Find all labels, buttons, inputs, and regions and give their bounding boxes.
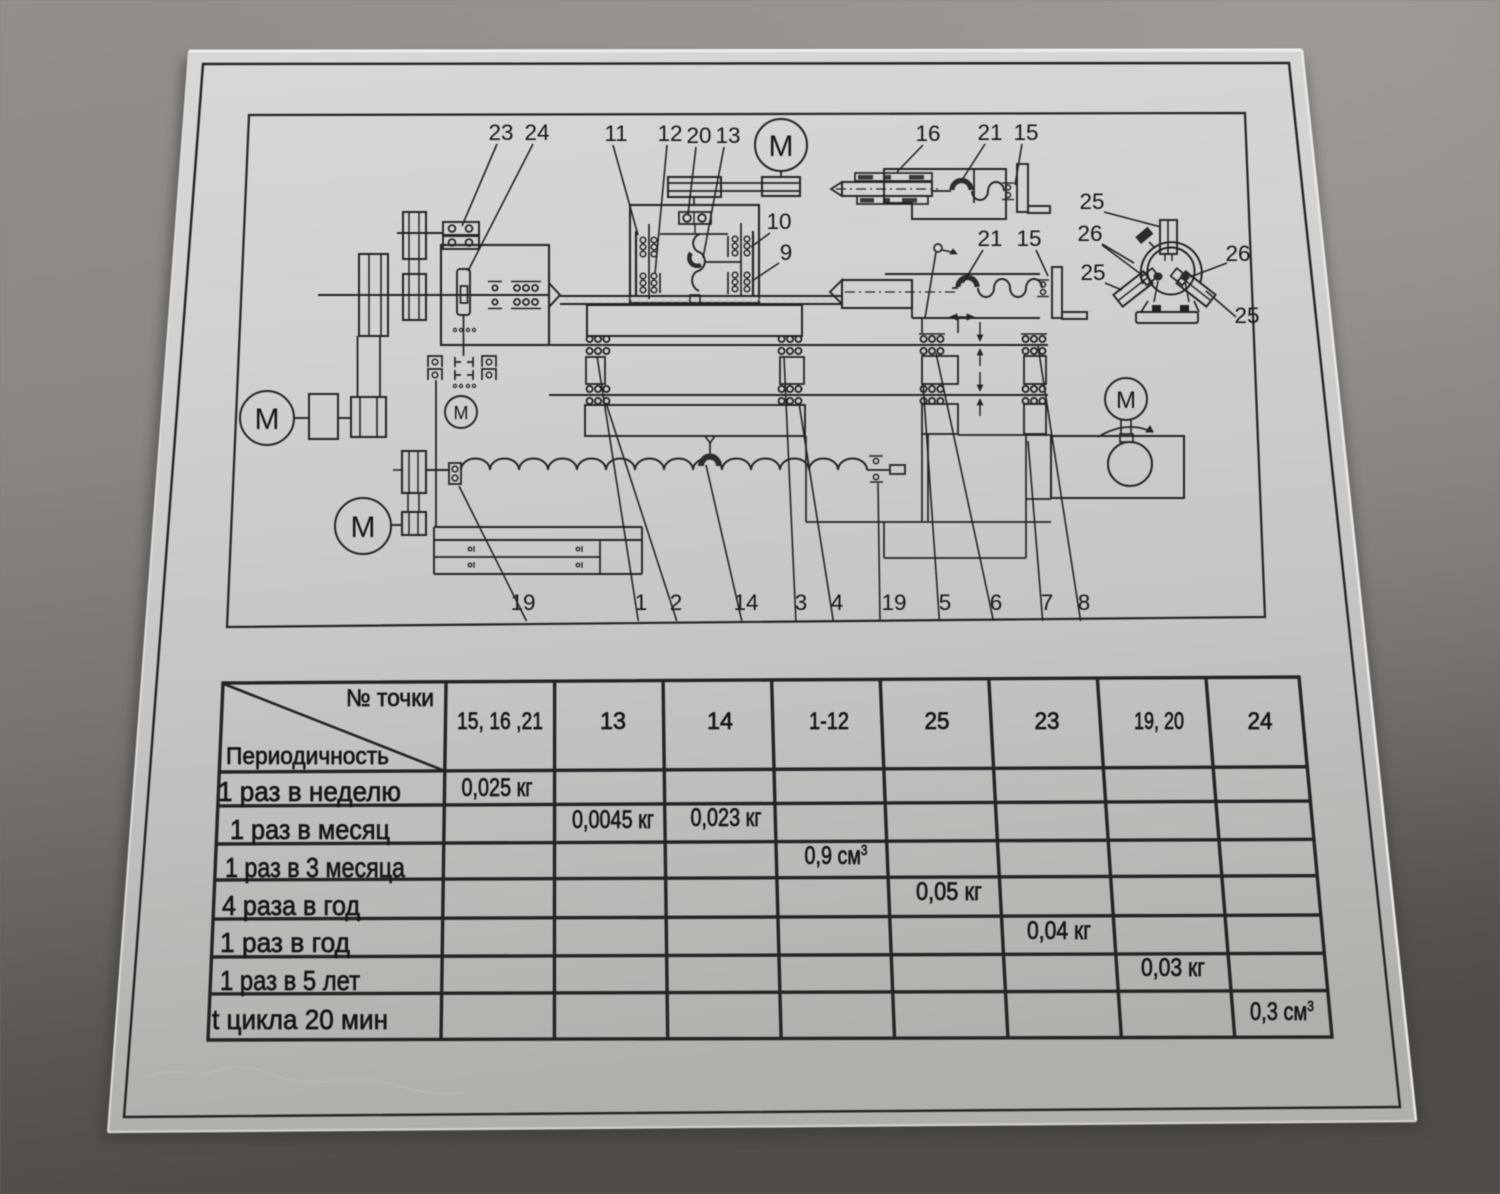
svg-text:1 раз в 5 лет: 1 раз в 5 лет <box>220 965 360 996</box>
svg-text:0,025 кг: 0,025 кг <box>462 774 533 802</box>
svg-text:26: 26 <box>1225 241 1250 266</box>
svg-text:0,03 кг: 0,03 кг <box>1141 954 1205 982</box>
svg-text:1 раз в год: 1 раз в год <box>220 927 350 958</box>
svg-text:21: 21 <box>977 226 1002 251</box>
svg-text:Периодичность: Периодичность <box>226 743 389 770</box>
svg-text:0,0045 кг: 0,0045 кг <box>572 806 654 834</box>
svg-text:25: 25 <box>1079 189 1104 214</box>
svg-text:1 раз в месяц: 1 раз в месяц <box>230 814 390 845</box>
svg-text:20: 20 <box>686 123 711 148</box>
svg-text:M: M <box>255 403 280 436</box>
svg-text:23: 23 <box>1035 708 1060 735</box>
svg-text:24: 24 <box>524 120 549 145</box>
svg-text:1 раз в 3 месяца: 1 раз в 3 месяца <box>225 852 405 883</box>
svg-text:19, 20: 19, 20 <box>1134 708 1184 735</box>
svg-text:12: 12 <box>657 121 682 146</box>
svg-text:19: 19 <box>510 590 535 615</box>
svg-text:0,3 см3: 0,3 см3 <box>1250 998 1314 1026</box>
svg-text:M: M <box>769 130 794 163</box>
svg-text:1-12: 1-12 <box>809 708 849 735</box>
svg-text:t цикла 20 мин: t цикла 20 мин <box>212 1004 388 1035</box>
svg-text:3: 3 <box>795 590 808 615</box>
svg-text:4 раза в год: 4 раза в год <box>222 890 360 921</box>
svg-text:11: 11 <box>604 121 627 146</box>
svg-text:25: 25 <box>1080 260 1105 285</box>
svg-text:25: 25 <box>1234 303 1259 328</box>
svg-text:15, 16 ,21: 15, 16 ,21 <box>457 708 543 735</box>
svg-text:13: 13 <box>600 708 626 735</box>
svg-text:26: 26 <box>1077 221 1102 246</box>
svg-text:16: 16 <box>915 121 940 146</box>
svg-text:M: M <box>1116 387 1136 414</box>
svg-text:5: 5 <box>939 590 952 615</box>
svg-text:0,9 см3: 0,9 см3 <box>805 842 868 870</box>
svg-text:25: 25 <box>925 708 950 735</box>
svg-text:13: 13 <box>715 123 740 148</box>
svg-text:0,05 кг: 0,05 кг <box>916 878 982 906</box>
svg-text:4: 4 <box>831 590 844 615</box>
svg-text:21: 21 <box>977 120 1002 145</box>
svg-text:0,04 кг: 0,04 кг <box>1027 917 1091 945</box>
svg-text:№ точки: № точки <box>346 685 434 712</box>
svg-text:23: 23 <box>488 120 513 145</box>
svg-text:1 раз в неделю: 1 раз в неделю <box>218 776 401 807</box>
svg-text:15: 15 <box>1013 120 1038 145</box>
svg-text:24: 24 <box>1248 708 1273 735</box>
svg-text:M: M <box>454 403 469 423</box>
svg-text:9: 9 <box>780 240 793 265</box>
svg-text:0,023 кг: 0,023 кг <box>691 804 762 832</box>
svg-text:19: 19 <box>881 590 906 615</box>
svg-text:15: 15 <box>1016 226 1041 251</box>
svg-text:10: 10 <box>766 209 791 234</box>
svg-text:14: 14 <box>707 708 733 735</box>
svg-text:M: M <box>351 511 376 544</box>
